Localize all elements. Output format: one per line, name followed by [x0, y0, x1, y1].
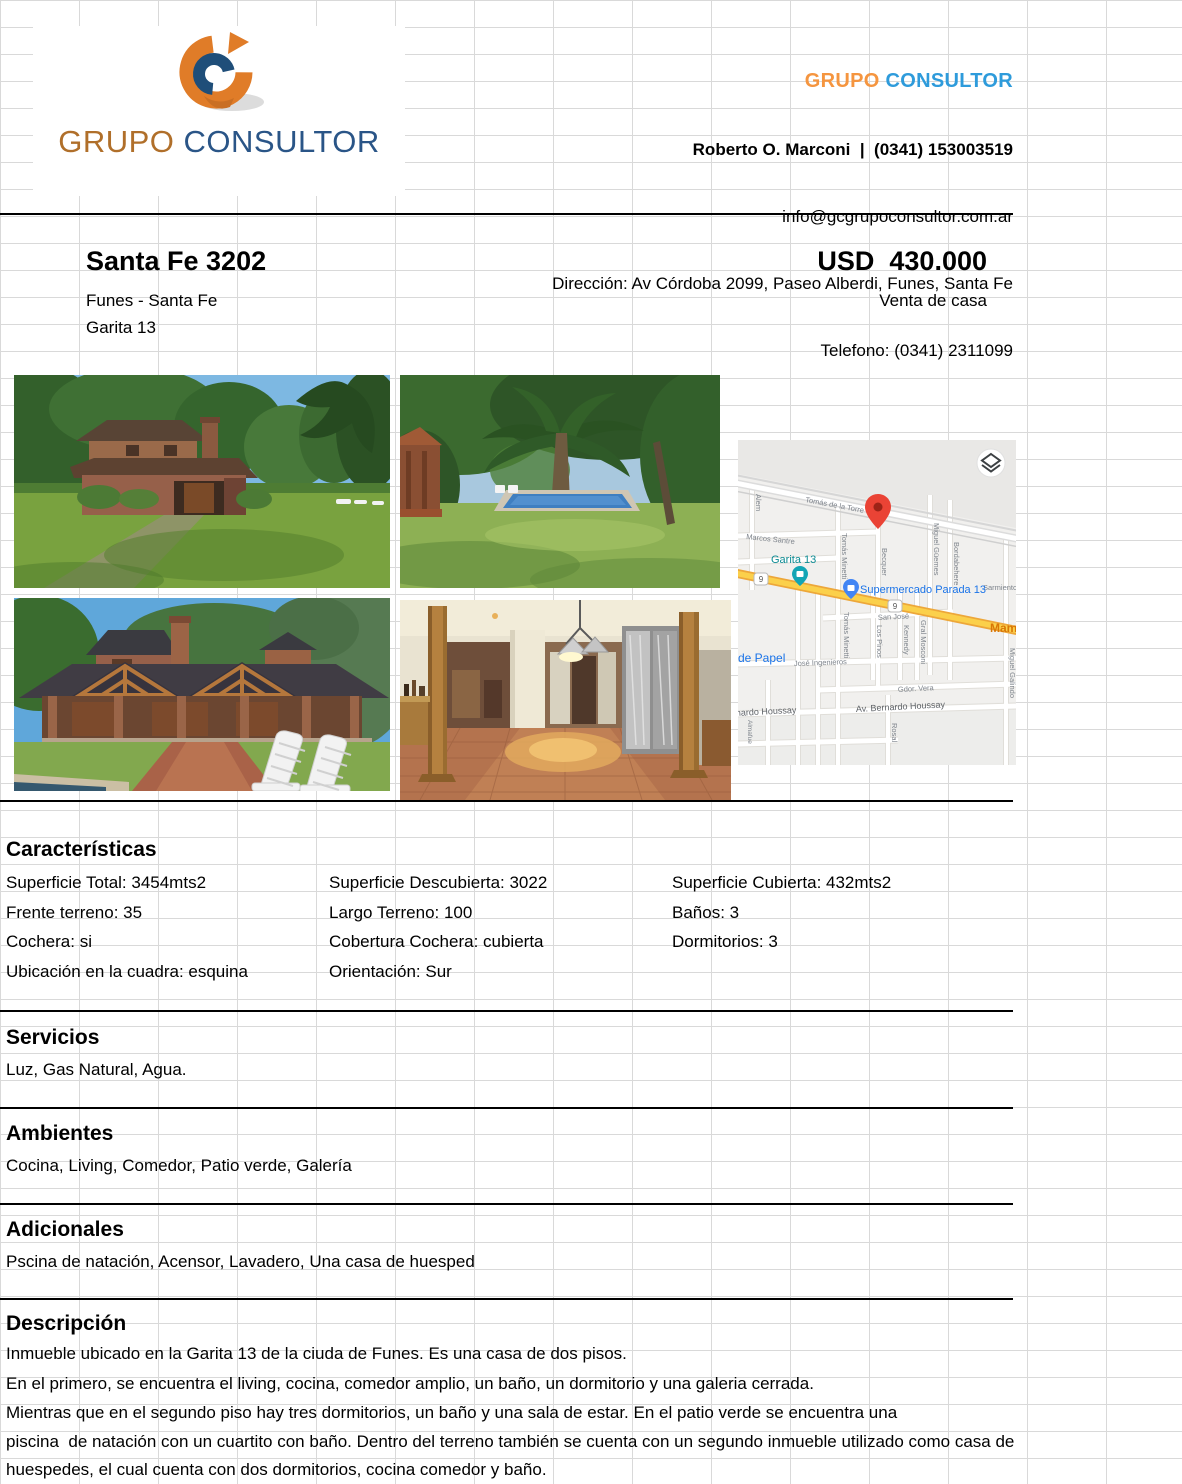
email-text: info@gcgrupoconsultor.com.ar [552, 207, 1013, 227]
agent-phone-line: Roberto O. Marconi | (0341) 153003519 [552, 140, 1013, 160]
listing-sheet: GRUPO CONSULTOR GRUPO CONSULTOR Roberto … [0, 0, 1182, 1484]
char-superficie-total: Superficie Total: 3454mts2 [6, 873, 206, 893]
brand-consultor: CONSULTOR [885, 70, 1013, 92]
svg-text:Gdor. Vera: Gdor. Vera [898, 683, 935, 694]
svg-text:Miguel Güemes: Miguel Güemes [932, 523, 941, 576]
descripcion-line: piscina de natación con un cuartito con … [6, 1432, 1014, 1452]
route-name-label: Mami [990, 621, 1016, 635]
left-porch [400, 427, 442, 517]
adicionales-text: Pscina de natación, Acensor, Lavadero, U… [6, 1252, 475, 1272]
char-superficie-descubierta: Superficie Descubierta: 3022 [329, 873, 547, 893]
route-9-badge-2: 9 [888, 600, 902, 612]
logo-wordmark: GRUPO CONSULTOR [58, 124, 380, 160]
descripcion-line: Inmueble ubicado en la Garita 13 de la c… [6, 1344, 627, 1364]
char-orientacion: Orientación: Sur [329, 962, 452, 982]
photo-exterior-front [14, 375, 390, 588]
logo-mark-icon [154, 26, 284, 122]
logo-word-consultor: CONSULTOR [184, 124, 380, 159]
logo-space [174, 124, 183, 159]
svg-text:Miguel Galindo: Miguel Galindo [1008, 648, 1016, 698]
char-frente-terreno: Frente terreno: 35 [6, 903, 142, 923]
servicios-text: Luz, Gas Natural, Agua. [6, 1060, 187, 1080]
char-cobertura-cochera: Cobertura Cochera: cubierta [329, 932, 544, 952]
svg-text:Becquer: Becquer [880, 548, 889, 576]
char-superficie-cubierta: Superficie Cubierta: 432mts2 [672, 873, 891, 893]
char-ubicacion-cuadra: Ubicación en la cuadra: esquina [6, 962, 248, 982]
photo-exterior-porch [14, 598, 390, 791]
section-divider [0, 213, 1013, 215]
svg-text:Rosal: Rosal [890, 723, 899, 743]
section-title-adicionales: Adicionales [6, 1218, 124, 1242]
svg-text:Kennedy: Kennedy [902, 625, 911, 655]
location-map: 9 9 Tomás de la Torre Marcos Santre Alem… [738, 440, 1016, 765]
section-title-caracteristicas: Características [6, 838, 157, 862]
layers-button[interactable] [977, 449, 1005, 477]
svg-text:Garita 13: Garita 13 [771, 554, 816, 566]
photo-garden-pool [400, 375, 720, 588]
brand-line: GRUPO CONSULTOR [552, 70, 1013, 93]
svg-text:José Ingenieros: José Ingenieros [794, 657, 847, 668]
section-title-ambientes: Ambientes [6, 1122, 113, 1146]
listing-operation: Venta de casa [879, 291, 987, 311]
svg-text:Gral Mosconi: Gral Mosconi [919, 620, 928, 665]
section-divider [0, 1010, 1013, 1012]
brand-grupo: GRUPO [805, 70, 880, 92]
phone-line: Telefono: (0341) 2311099 [552, 341, 1013, 361]
descripcion-line: Mientras que en el segundo piso hay tres… [6, 1403, 897, 1423]
photo-interior-hall [400, 600, 731, 800]
svg-text:Alem: Alem [754, 494, 763, 511]
ambientes-text: Cocina, Living, Comedor, Patio verde, Ga… [6, 1156, 352, 1176]
poi-de-papel: de Papel [738, 651, 785, 665]
section-divider [0, 1107, 1013, 1109]
svg-text:9: 9 [893, 602, 898, 611]
char-largo-terreno: Largo Terreno: 100 [329, 903, 472, 923]
section-divider [0, 1203, 1013, 1205]
descripcion-line: En el primero, se encuentra el living, c… [6, 1374, 814, 1394]
pool [494, 490, 640, 511]
section-divider [0, 800, 1013, 802]
page-title: Santa Fe 3202 [86, 246, 266, 277]
listing-location: Funes - Santa Fe [86, 291, 217, 311]
svg-text:Sarmiento: Sarmiento [983, 583, 1016, 592]
listing-neighborhood: Garita 13 [86, 318, 156, 338]
svg-text:Tomás Minetti: Tomás Minetti [840, 533, 849, 580]
contact-block: GRUPO CONSULTOR Roberto O. Marconi | (03… [552, 34, 1013, 397]
svg-text:Bordabehere: Bordabehere [952, 542, 961, 585]
listing-price: USD 430.000 [817, 246, 987, 277]
descripcion-line: huespedes, el cual cuenta con dos dormit… [6, 1460, 547, 1480]
section-title-servicios: Servicios [6, 1026, 99, 1050]
char-cochera: Cochera: si [6, 932, 92, 952]
logo-word-grupo: GRUPO [58, 124, 174, 159]
company-logo: GRUPO CONSULTOR [33, 26, 405, 196]
svg-text:Tomás Minetti: Tomás Minetti [842, 612, 851, 659]
svg-text:Almafue: Almafue [746, 720, 753, 744]
char-dormitorios: Dormitorios: 3 [672, 932, 778, 952]
section-divider [0, 1298, 1013, 1300]
route-9-badge: 9 [754, 573, 768, 585]
section-title-descripcion: Descripción [6, 1312, 126, 1336]
svg-text:Los Pinos: Los Pinos [875, 625, 884, 658]
char-banos: Baños: 3 [672, 903, 739, 923]
svg-text:San José: San José [878, 611, 910, 622]
svg-text:9: 9 [759, 575, 764, 584]
svg-text:Supermercado Parada 13: Supermercado Parada 13 [860, 584, 986, 596]
